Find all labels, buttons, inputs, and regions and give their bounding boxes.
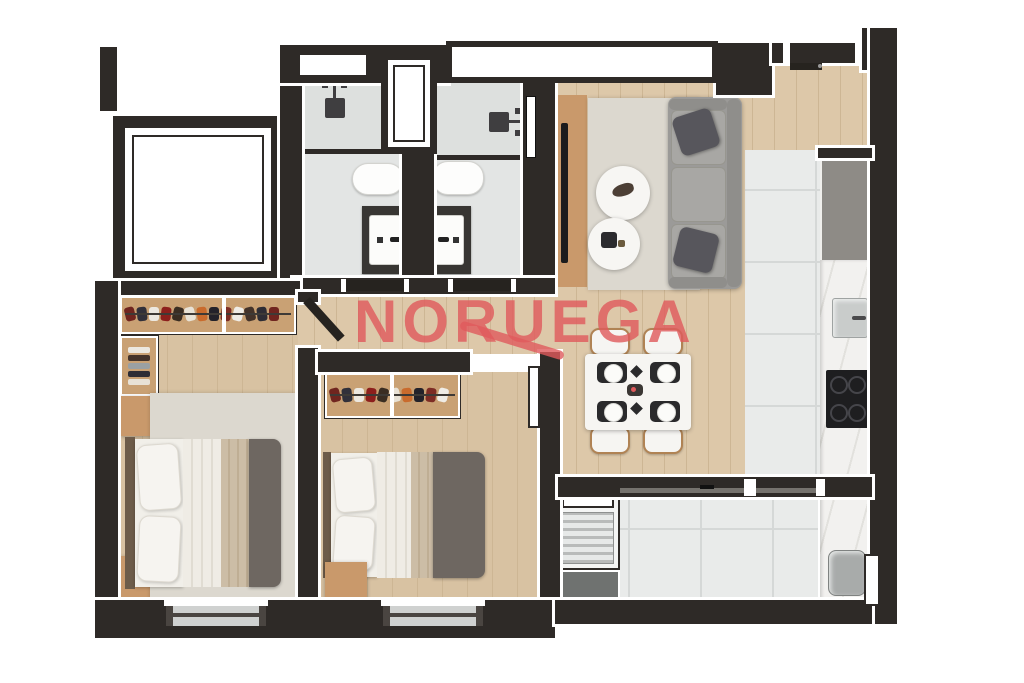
wall-bedrooms-divider: [298, 348, 318, 605]
tv-panel: [553, 95, 587, 287]
elevator-shaft-inner-line: [132, 135, 264, 264]
wall-kitchen-jut: [818, 148, 872, 158]
folded-clothes: [128, 379, 150, 385]
bedroom2-window-sill: [381, 598, 485, 606]
bed2-sheet: [377, 452, 411, 578]
toilet-2: [432, 161, 484, 195]
wall-bedroom2-top: [318, 352, 470, 372]
wardrobe-rail: [125, 313, 290, 315]
bedroom1-window-bar: [166, 613, 266, 617]
sofa-armrest: [669, 99, 727, 110]
entry-door-knob: [818, 64, 822, 68]
duct-shaft-line: [393, 65, 425, 142]
bed1-blanket: [221, 439, 249, 587]
showerhead-icon: [325, 98, 345, 118]
folded-clothes: [128, 363, 150, 369]
plate: [604, 364, 623, 383]
wall-bathroom-divider: [402, 150, 434, 292]
shower-pipe: [509, 120, 523, 123]
wall-bedroom2-right: [540, 352, 560, 605]
dining-chair: [590, 426, 630, 454]
bathroom1-window-glass: [300, 55, 366, 75]
plate: [657, 364, 676, 383]
placemat-with-plate: [597, 401, 627, 422]
toilet-1: [352, 163, 404, 195]
burner-icon: [848, 376, 866, 394]
placemat-with-plate: [650, 401, 680, 422]
floor-plan-canvas: NORUEGA: [0, 0, 1024, 683]
sofa-backrest: [727, 99, 741, 287]
kitchen-faucet: [852, 316, 866, 320]
folded-clothes: [128, 347, 150, 353]
burner-icon: [848, 404, 866, 422]
wardrobe-divider: [222, 294, 226, 334]
tv-screen: [561, 123, 568, 263]
balcony-right-window: [864, 554, 880, 606]
bed2-headboard: [323, 452, 331, 578]
burner-icon: [830, 376, 848, 394]
sofa-armrest: [669, 277, 727, 288]
cooktop: [826, 370, 870, 428]
bed2-duvet: [433, 452, 485, 578]
wall-bottom-right: [555, 600, 872, 624]
bed1-pillow: [136, 443, 183, 512]
slider-handle: [700, 485, 714, 489]
laundry-tub: [828, 550, 866, 596]
bathroom2-side-window: [526, 96, 536, 158]
bedroom2-door-leaf: [528, 366, 540, 428]
slider-track: [620, 488, 816, 493]
window-cap: [476, 606, 483, 626]
refrigerator-cabinet: [820, 155, 870, 260]
showerhead-icon: [489, 112, 509, 132]
placemat-with-plate: [650, 362, 680, 383]
window-cap: [383, 606, 390, 626]
bedroom1-window-sill: [164, 598, 268, 606]
slider-jamb: [816, 479, 825, 496]
louver-vent: [562, 512, 614, 564]
bed2-pillow: [332, 456, 377, 513]
window-cap: [259, 606, 266, 626]
centerpiece-berries: [631, 387, 636, 392]
entry-jamb: [783, 43, 790, 63]
door-jamb: [341, 279, 346, 292]
wall-right: [870, 28, 897, 624]
bedroom1-wardrobe: [120, 294, 296, 334]
coffee-table-tray: [601, 232, 617, 248]
shower-control: [515, 130, 521, 136]
burner-icon: [830, 404, 848, 422]
slider-jamb: [744, 479, 756, 496]
faucet-icon: [438, 237, 449, 242]
bedroom2-nightstand: [325, 562, 367, 604]
wardrobe-divider: [390, 372, 394, 418]
dining-chair: [643, 426, 683, 454]
kitchen-floor: [745, 150, 820, 477]
plate: [657, 403, 676, 422]
bed2-blanket: [411, 452, 433, 578]
bedroom2-window-bar: [383, 613, 483, 617]
bedroom1-shelf: [120, 336, 158, 396]
shower-control: [515, 108, 521, 114]
wall-bedroom1-top: [95, 281, 300, 295]
entry-jamb: [855, 43, 862, 63]
shower-glass-2: [434, 155, 523, 160]
placemat-with-plate: [597, 362, 627, 383]
bed1-headboard: [125, 437, 135, 589]
kitchen-counter: [820, 260, 870, 477]
folded-clothes: [128, 371, 150, 377]
folded-clothes: [128, 355, 150, 361]
plate: [604, 403, 623, 422]
faucet-handle: [377, 237, 383, 243]
bed1-pillow: [136, 515, 181, 583]
wall-left-lower: [95, 281, 118, 608]
wall-left-stub: [100, 47, 117, 111]
bed1-duvet: [249, 439, 281, 587]
coffee-table-item: [618, 240, 625, 247]
window-cap: [166, 606, 173, 626]
wall-foyer-top-deep: [716, 43, 772, 95]
living-window-glass: [452, 47, 712, 77]
faucet-icon: [390, 237, 401, 242]
faucet-handle: [453, 237, 459, 243]
sofa-cushion: [671, 167, 726, 222]
bed1-sheet: [183, 439, 221, 587]
